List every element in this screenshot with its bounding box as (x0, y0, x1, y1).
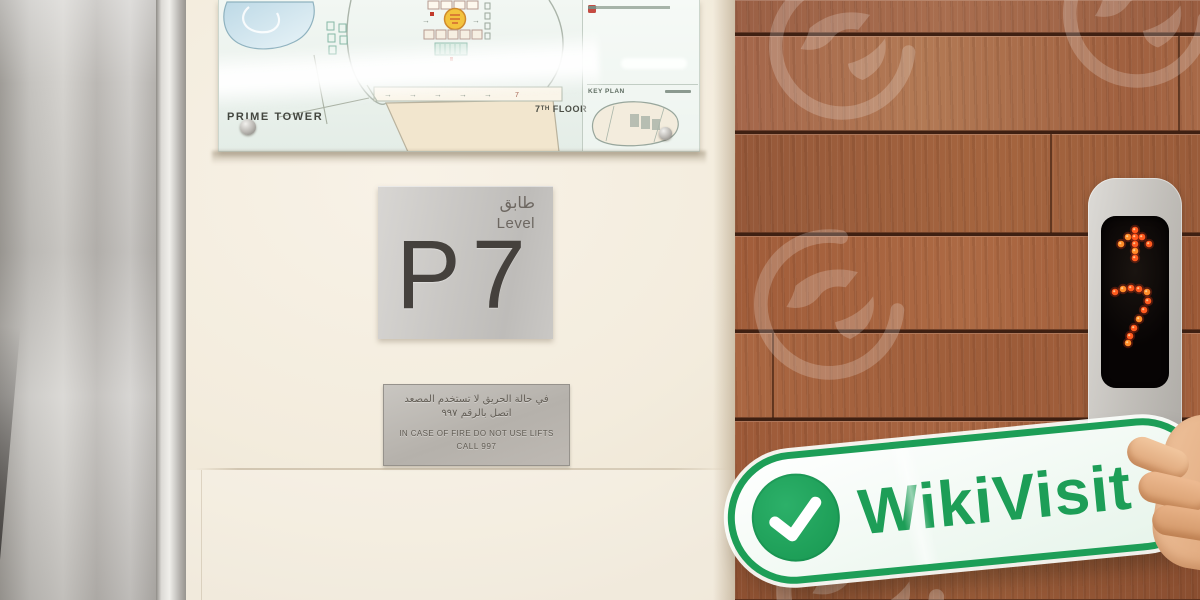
legend-divider (587, 84, 698, 85)
svg-text:→: → (472, 16, 480, 25)
wall-lower-panel (186, 470, 735, 600)
level-sign: طابق Level P7 (378, 186, 553, 339)
legend-smudge (621, 58, 687, 69)
fire-arabic-line1: في حالة الحريق لا تستخدم المصعد (384, 394, 569, 405)
plank-seam (1050, 134, 1052, 233)
wall-vertical-seam (201, 470, 202, 600)
floor-number-label: 7ᵀᴴ FLOOR (535, 104, 587, 114)
level-arabic-label: طابق (500, 193, 535, 212)
elevator-door (0, 0, 186, 600)
door-gap-shadow (0, 326, 20, 600)
door-frame-strip (156, 0, 186, 600)
wood-plank (735, 36, 1200, 131)
fire-english-line1: IN CASE OF FIRE DO NOT USE LIFTS (384, 429, 569, 438)
plank-seam (772, 333, 774, 418)
wall-seam (196, 468, 726, 470)
fire-plaque: في حالة الحريق لا تستخدم المصعد اتصل بال… (383, 384, 570, 466)
standoff-screw (240, 119, 256, 135)
level-value: P7 (396, 226, 537, 323)
wood-plank (735, 0, 1200, 33)
standoff-screw (659, 127, 672, 140)
key-plan-arabic-text (665, 90, 691, 93)
sign-shadow (212, 151, 706, 164)
map-legend: KEY PLAN (582, 0, 700, 152)
led-dot-matrix (1101, 216, 1169, 388)
fire-arabic-line2: اتصل بالرقم ٩٩٧ (384, 408, 569, 419)
elevator-lobby-photo: →→ →→ →7 →→ (0, 0, 1200, 600)
floor-plan-sign: →→ →→ →7 →→ (218, 0, 700, 152)
svg-text:→: → (422, 16, 430, 25)
plank-seam (1178, 36, 1180, 131)
fire-english-line2: CALL 997 (384, 442, 569, 451)
elevator-indicator-panel (1088, 178, 1182, 456)
key-plan-drawing (584, 96, 700, 151)
led-floor-display (1101, 216, 1169, 388)
